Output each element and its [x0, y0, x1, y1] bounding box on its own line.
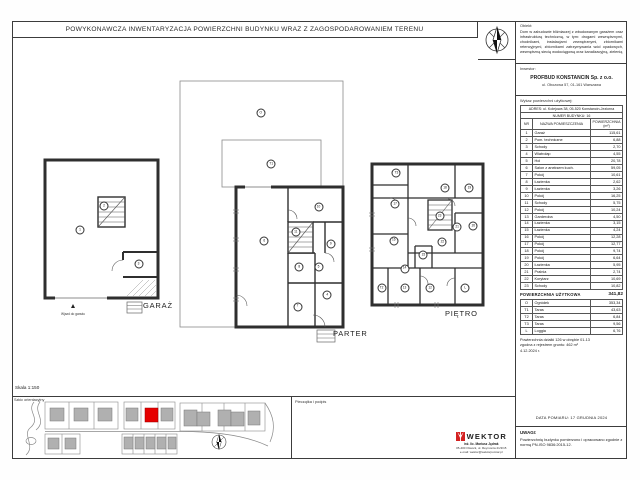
table-row: LLoggia6,76: [521, 328, 623, 335]
garage-floor-plan: Wjazd do garażu 123: [35, 128, 185, 328]
stamp-box: Pieczątka i podpis WEKTOR inż. lic. Mari…: [292, 396, 515, 459]
table-row: T3Taras9,56: [521, 321, 623, 328]
room-marker: 18: [441, 183, 450, 192]
room-marker: 19: [465, 183, 474, 192]
driveway-label: Wjazd do garażu: [61, 312, 85, 316]
table-row: 11Schody5,75: [521, 199, 623, 206]
table-row: 19Pokój6,64: [521, 255, 623, 262]
room-marker: 12: [426, 284, 435, 293]
north-arrow-box: [478, 21, 515, 60]
surveyor-logo: WEKTOR inż. lic. Mariusz Jędrak 05-400 O…: [456, 432, 507, 454]
table-row: 14Łazienka3,15: [521, 220, 623, 227]
room-marker: 22: [438, 238, 447, 247]
title-block: POWYKONAWCZA INWENTARYZACJA POWIERZCHNI …: [12, 21, 478, 38]
room-marker: T2: [377, 284, 386, 293]
garage-label: GARAŻ: [143, 301, 173, 310]
first-floor-plan: T3181917162321202215141312T2L: [360, 158, 495, 323]
measurement-date: DATA POMIARU: 17 GRUDNIA 2024: [516, 415, 627, 420]
table-row: OOgródek353,34: [521, 300, 623, 307]
remarks-label: UWAGI:: [520, 430, 623, 435]
house: [161, 408, 173, 421]
ground-floor-label: PARTER: [333, 329, 368, 338]
site-sketch-box: Szkic orientacyjny: [12, 396, 292, 459]
plot-note-date: 4.12.2024 r.: [520, 349, 623, 354]
highlighted-building: [145, 408, 158, 422]
table-row: 3Schody2,70: [521, 144, 623, 151]
first-floor-label: PIĘTRO: [445, 309, 478, 318]
room-marker: O: [256, 108, 265, 117]
table-header-row: NR NAZWA POMIESZCZENIA POWIERZCHNIA (m²): [521, 119, 623, 130]
table-row: 1Garaż115,61: [521, 130, 623, 137]
house: [126, 408, 138, 421]
room-marker: 14: [400, 264, 409, 273]
table-row: 18Pokój9,74: [521, 248, 623, 255]
table-row: 9Łazienka3,26: [521, 185, 623, 192]
table-row: 23Schody10,82: [521, 283, 623, 290]
room-marker: T3: [392, 168, 401, 177]
room-marker: 23: [435, 211, 444, 220]
room-marker: 2: [100, 202, 109, 211]
area-list-box: Wykaz powierzchni użytkowej: ADRES: ul. …: [516, 96, 627, 427]
room-marker: 15: [419, 251, 428, 260]
room-marker: 1: [76, 226, 85, 235]
exterior-steps: [127, 302, 142, 313]
room-marker: 21: [453, 223, 462, 232]
table-address-row: ADRES: ul. Kolejowa 38, 05-520 Konstanci…: [521, 106, 623, 113]
houses: [184, 410, 260, 426]
driveway-arrow: [71, 304, 75, 308]
area-list-label: Wykaz powierzchni użytkowej:: [520, 98, 623, 103]
total-area-label: POWIERZCHNIA UŻYTKOWA: [520, 292, 581, 297]
logo-brand: WEKTOR: [467, 432, 507, 441]
table-row: T1Taras43,63: [521, 307, 623, 314]
room-marker: 6: [260, 237, 269, 246]
investor-box: Inwestor: PROFBUD KONSTANCIN Sp. z o.o. …: [516, 64, 627, 96]
room-marker: 8: [295, 262, 304, 271]
remarks-box: UWAGI: Powierzchnię budynku pomierzono i…: [516, 427, 627, 459]
logo-line3: e-mail: wektor@wektorpomiar.pl: [456, 450, 507, 454]
table-row: 10Pokój16,25: [521, 192, 623, 199]
table-row: 12Pokój10,24: [521, 206, 623, 213]
garage-plan-drawing: Wjazd do garażu: [35, 128, 185, 328]
compass-icon: [212, 435, 226, 450]
scale-label: Skala 1:150: [15, 385, 39, 390]
room-marker: 16: [389, 236, 398, 245]
room-marker: T1: [267, 160, 276, 169]
room-marker: 11: [291, 228, 300, 237]
table-row: 8Łazienka2,62: [521, 178, 623, 185]
table-row: 15Łazienka4,24: [521, 227, 623, 234]
table-row: 7Pokój10,61: [521, 172, 623, 179]
site-sketch-drawing: [12, 398, 290, 459]
table-row: 4Wiatrołap4,55: [521, 151, 623, 158]
room-marker: 4: [323, 291, 332, 300]
table-row: 2Pom. techniczne6,88: [521, 137, 623, 144]
table-building-row: NUMER BUDYNKU: 16: [521, 112, 623, 119]
table-row: 5Hol20,78: [521, 158, 623, 165]
table-row: 6Salon z aneksem kuch.59,05: [521, 165, 623, 172]
room-marker: 17: [391, 200, 400, 209]
total-area-value: 341,82: [608, 292, 623, 297]
room-marker: 13: [400, 284, 409, 293]
table-row: 13Garderoba4,50: [521, 213, 623, 220]
wektor-logo-icon: [456, 432, 465, 441]
investor-name: PROFBUD KONSTANCIN Sp. z o.o.: [520, 75, 623, 81]
object-label: Obiekt:: [520, 23, 623, 28]
room-marker: 10: [314, 202, 323, 211]
houses: [50, 408, 112, 421]
room-marker: 20: [469, 221, 478, 230]
north-arrow-icon: [482, 23, 512, 57]
room-marker: L: [461, 284, 470, 293]
remarks-text: Powierzchnię budynku pomierzono i opraco…: [520, 437, 623, 447]
table-row: 20Łazienka5,95: [521, 262, 623, 269]
ground-floor-plan: OT16101195874: [175, 70, 350, 355]
investor-address: ul. Obozowa 57, 01-161 Warszawa: [520, 83, 623, 87]
stairs: [288, 222, 313, 253]
investor-label: Inwestor:: [520, 66, 623, 71]
room-marker: 7: [293, 302, 302, 311]
plot-notes: Powierzchnia działki 126 w obrębie 01-13…: [520, 338, 623, 354]
right-panel: Obiekt: Dom w zabudowie bliźniaczej z wb…: [515, 21, 627, 459]
houses: [124, 437, 176, 449]
table-row: 21Pralnia2,74: [521, 269, 623, 276]
room-marker: 5: [314, 262, 323, 271]
table-row: 22Korytarz10,69: [521, 276, 623, 283]
table-row: 17Pokój12,77: [521, 241, 623, 248]
total-area-row: POWIERZCHNIA UŻYTKOWA 341,82: [520, 292, 623, 297]
table-row: 16Pokój12,28: [521, 234, 623, 241]
table-row: T2Taras6,84: [521, 314, 623, 321]
first-floor-drawing: [360, 158, 495, 323]
stamp-label: Pieczątka i podpis: [295, 399, 326, 404]
page-title: POWYKONAWCZA INWENTARYZACJA POWIERZCHNI …: [66, 26, 424, 33]
outdoor-area-table: OOgródek353,34T1Taras43,63T2Taras6,84T3T…: [520, 299, 623, 335]
object-box: Obiekt: Dom w zabudowie bliźniaczej z wb…: [516, 21, 627, 64]
room-marker: 3: [134, 260, 143, 269]
room-marker: 9: [326, 239, 335, 248]
drawing-sheet: POWYKONAWCZA INWENTARYZACJA POWIERZCHNI …: [0, 0, 640, 480]
object-description: Dom w zabudowie bliźniaczej z wbudowanym…: [520, 30, 623, 56]
area-table: ADRES: ul. Kolejowa 38, 05-520 Konstanci…: [520, 105, 623, 290]
